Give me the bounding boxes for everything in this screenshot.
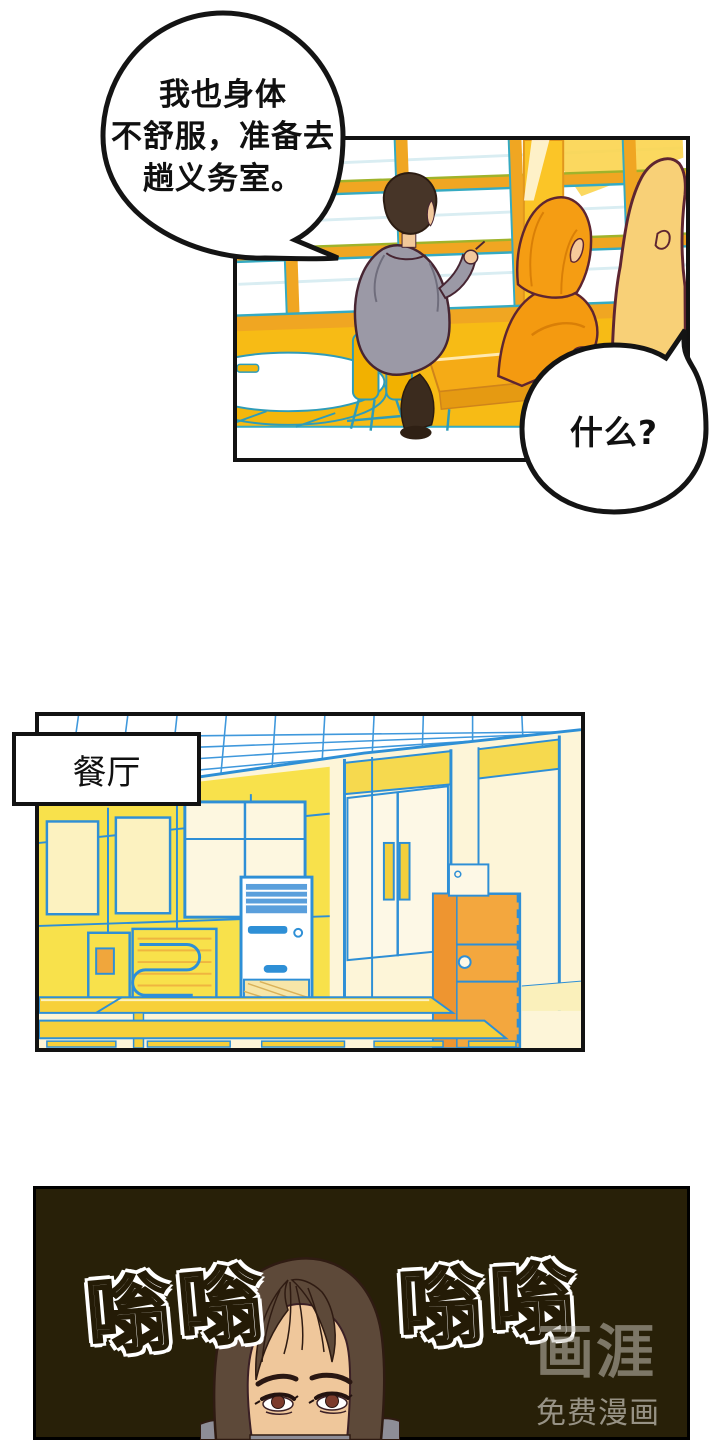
bubble1-line2: 不舒服，准备去 [98, 116, 348, 158]
sfx-buzzing-left: 嗡嗡 [81, 1236, 275, 1373]
watermark: 画涯 免费漫画 [536, 1322, 660, 1432]
watermark-logo: 画涯 [536, 1322, 660, 1382]
bubble1-line3: 趟义务室。 [98, 158, 348, 200]
location-label: 餐厅 [12, 732, 201, 806]
air-conditioner [241, 877, 312, 1009]
speech-bubble-2-text: 什么? [524, 406, 704, 454]
speech-bubble-1-text: 我也身体 不舒服，准备去 趟义务室。 [98, 74, 348, 200]
watermark-tagline: 免费漫画 [536, 1388, 660, 1432]
bubble1-line1: 我也身体 [98, 74, 348, 116]
collar [250, 1435, 350, 1440]
